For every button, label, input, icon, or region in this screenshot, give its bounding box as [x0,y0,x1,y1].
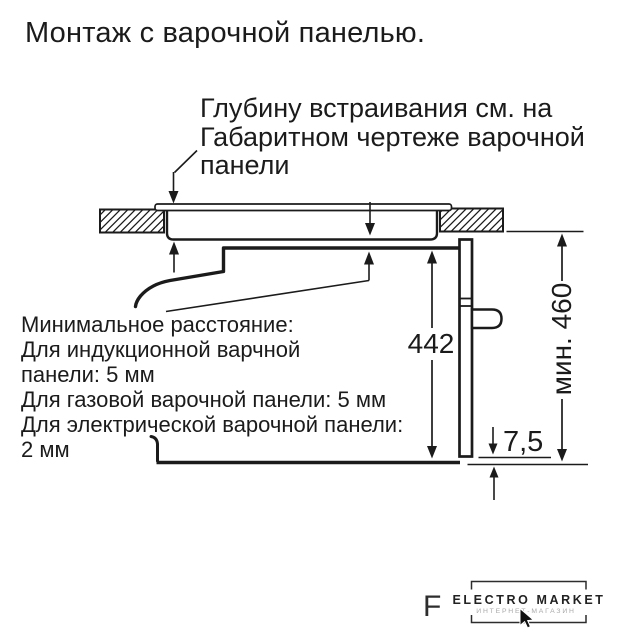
worktop-right-section [440,209,503,232]
hob-top-plate [155,204,452,211]
arrow-up-oven-top [364,252,374,265]
arrow-down-dim-75 [489,444,498,455]
dim-7-5-label: 7,5 [503,426,543,458]
min-distance-leader-line [166,281,369,312]
arrow-down-hob-surface [169,191,179,204]
arrow-down-dim-442 [427,446,437,459]
oven-top-profile [136,248,459,307]
technical-drawing: 442 мин. 460 7,5 F ELECTRO MARKET ИНТЕРН… [0,0,643,640]
shop-watermark: F ELECTRO MARKET ИНТЕРНЕТ-МАГАЗИН [423,582,606,629]
arrow-down-dim-460 [557,449,567,462]
embed-depth-leader-line [175,151,198,173]
arrow-up-dim-460 [557,234,567,247]
worktop-left-section [100,210,164,233]
arrow-up-dim-75 [490,467,499,478]
dim-min460-label: мин. 460 [546,283,577,396]
door-handle [472,310,502,329]
watermark-letter: F [423,590,441,623]
installation-diagram-page: Монтаж с варочной панелью. Глубину встра… [0,0,643,640]
arrow-up-hob-underside [169,242,179,255]
logo-brand-text: ELECTRO MARKET [452,593,605,607]
hob-body [167,209,437,240]
oven-door-front [460,240,473,457]
dim-442-label: 442 [408,328,455,359]
logo-frame-top [472,582,587,590]
arrow-up-dim-442 [427,251,437,264]
oven-bottom-left-hook [151,437,158,462]
